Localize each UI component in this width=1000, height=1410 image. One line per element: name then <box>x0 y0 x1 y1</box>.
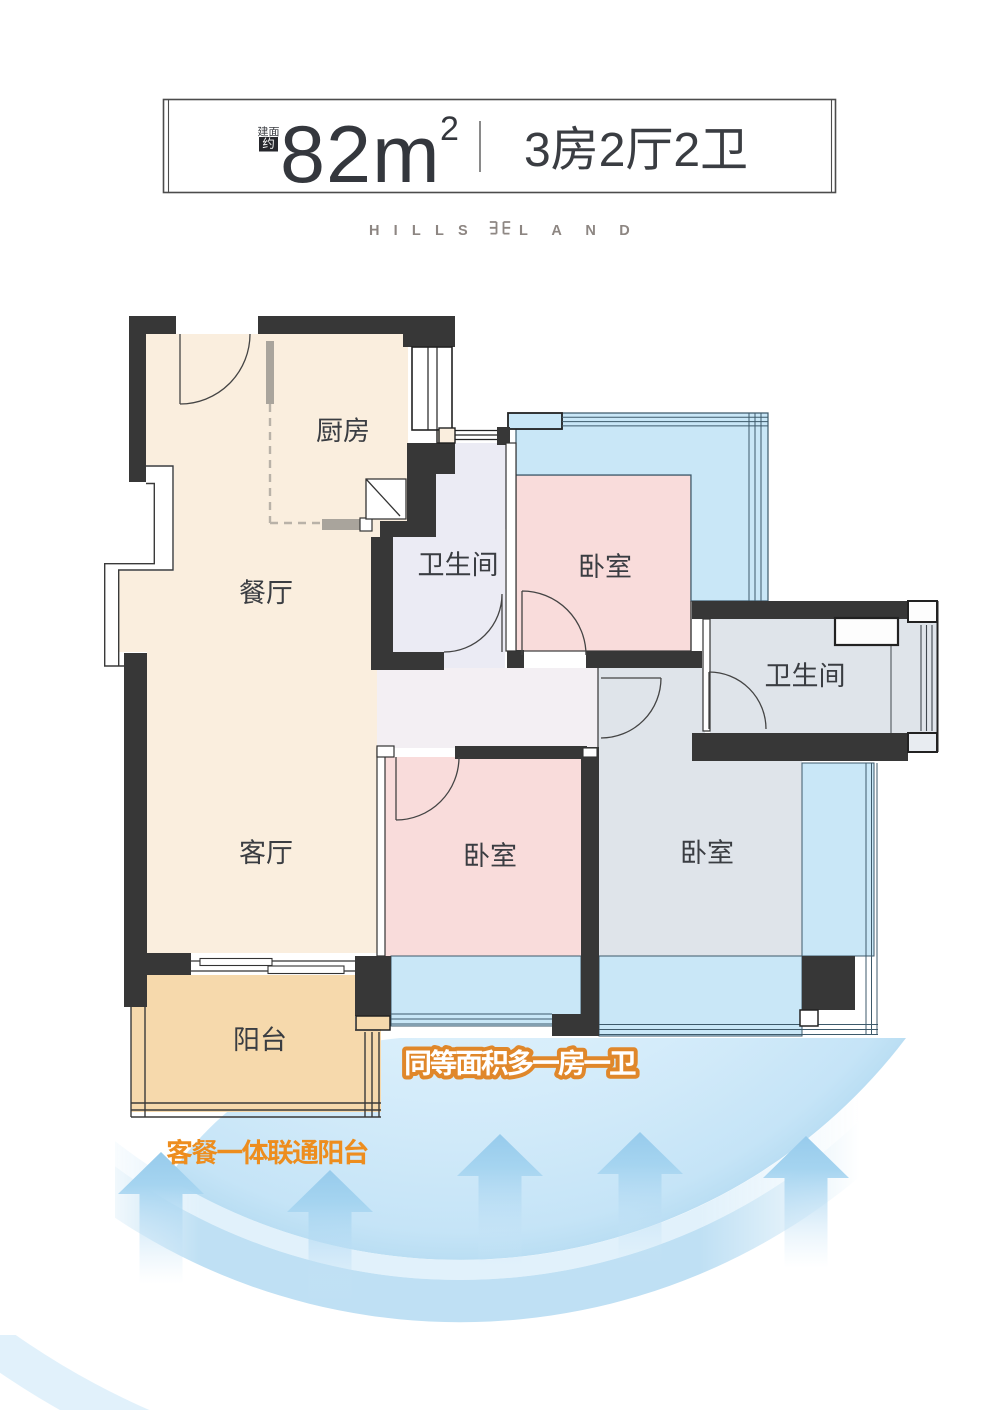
svg-text:82m: 82m <box>280 110 441 200</box>
svg-text:HILLS: HILLS <box>369 223 482 239</box>
svg-text:2: 2 <box>440 110 459 148</box>
svg-text:LAND: LAND <box>519 223 653 239</box>
